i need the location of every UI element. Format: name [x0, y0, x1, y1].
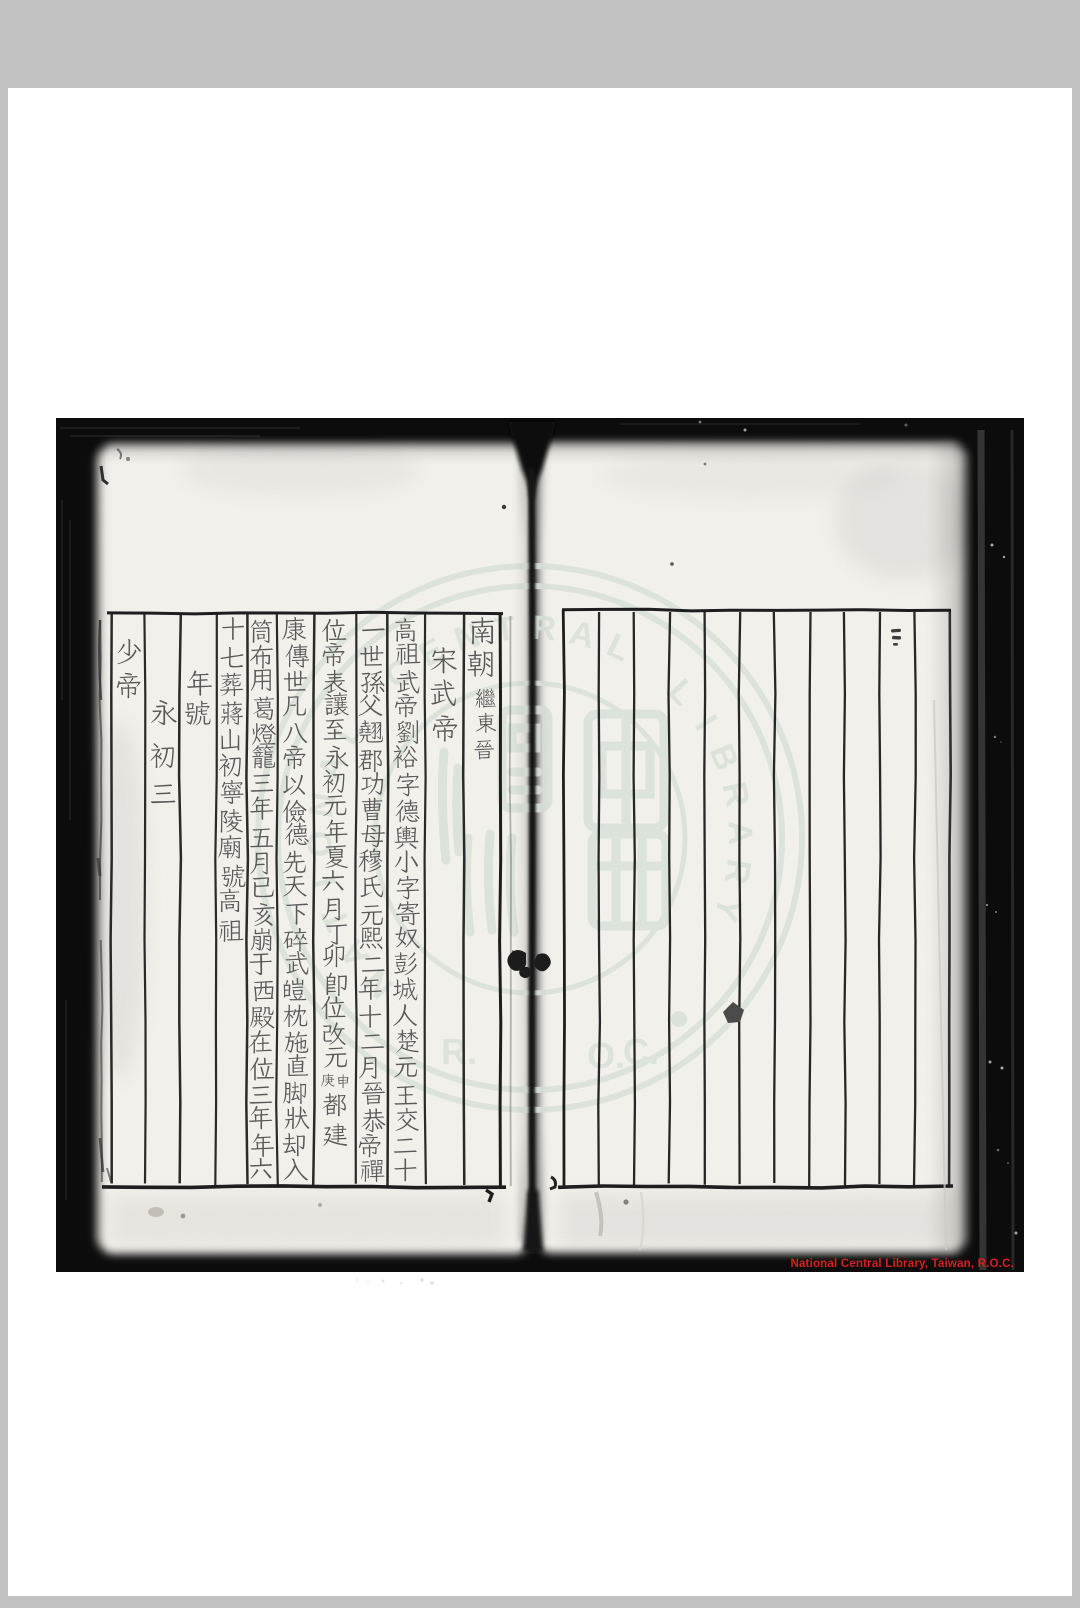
svg-text:National Central Library, Taiw: National Central Library, Taiwan, R.O.C. — [790, 1258, 1014, 1270]
